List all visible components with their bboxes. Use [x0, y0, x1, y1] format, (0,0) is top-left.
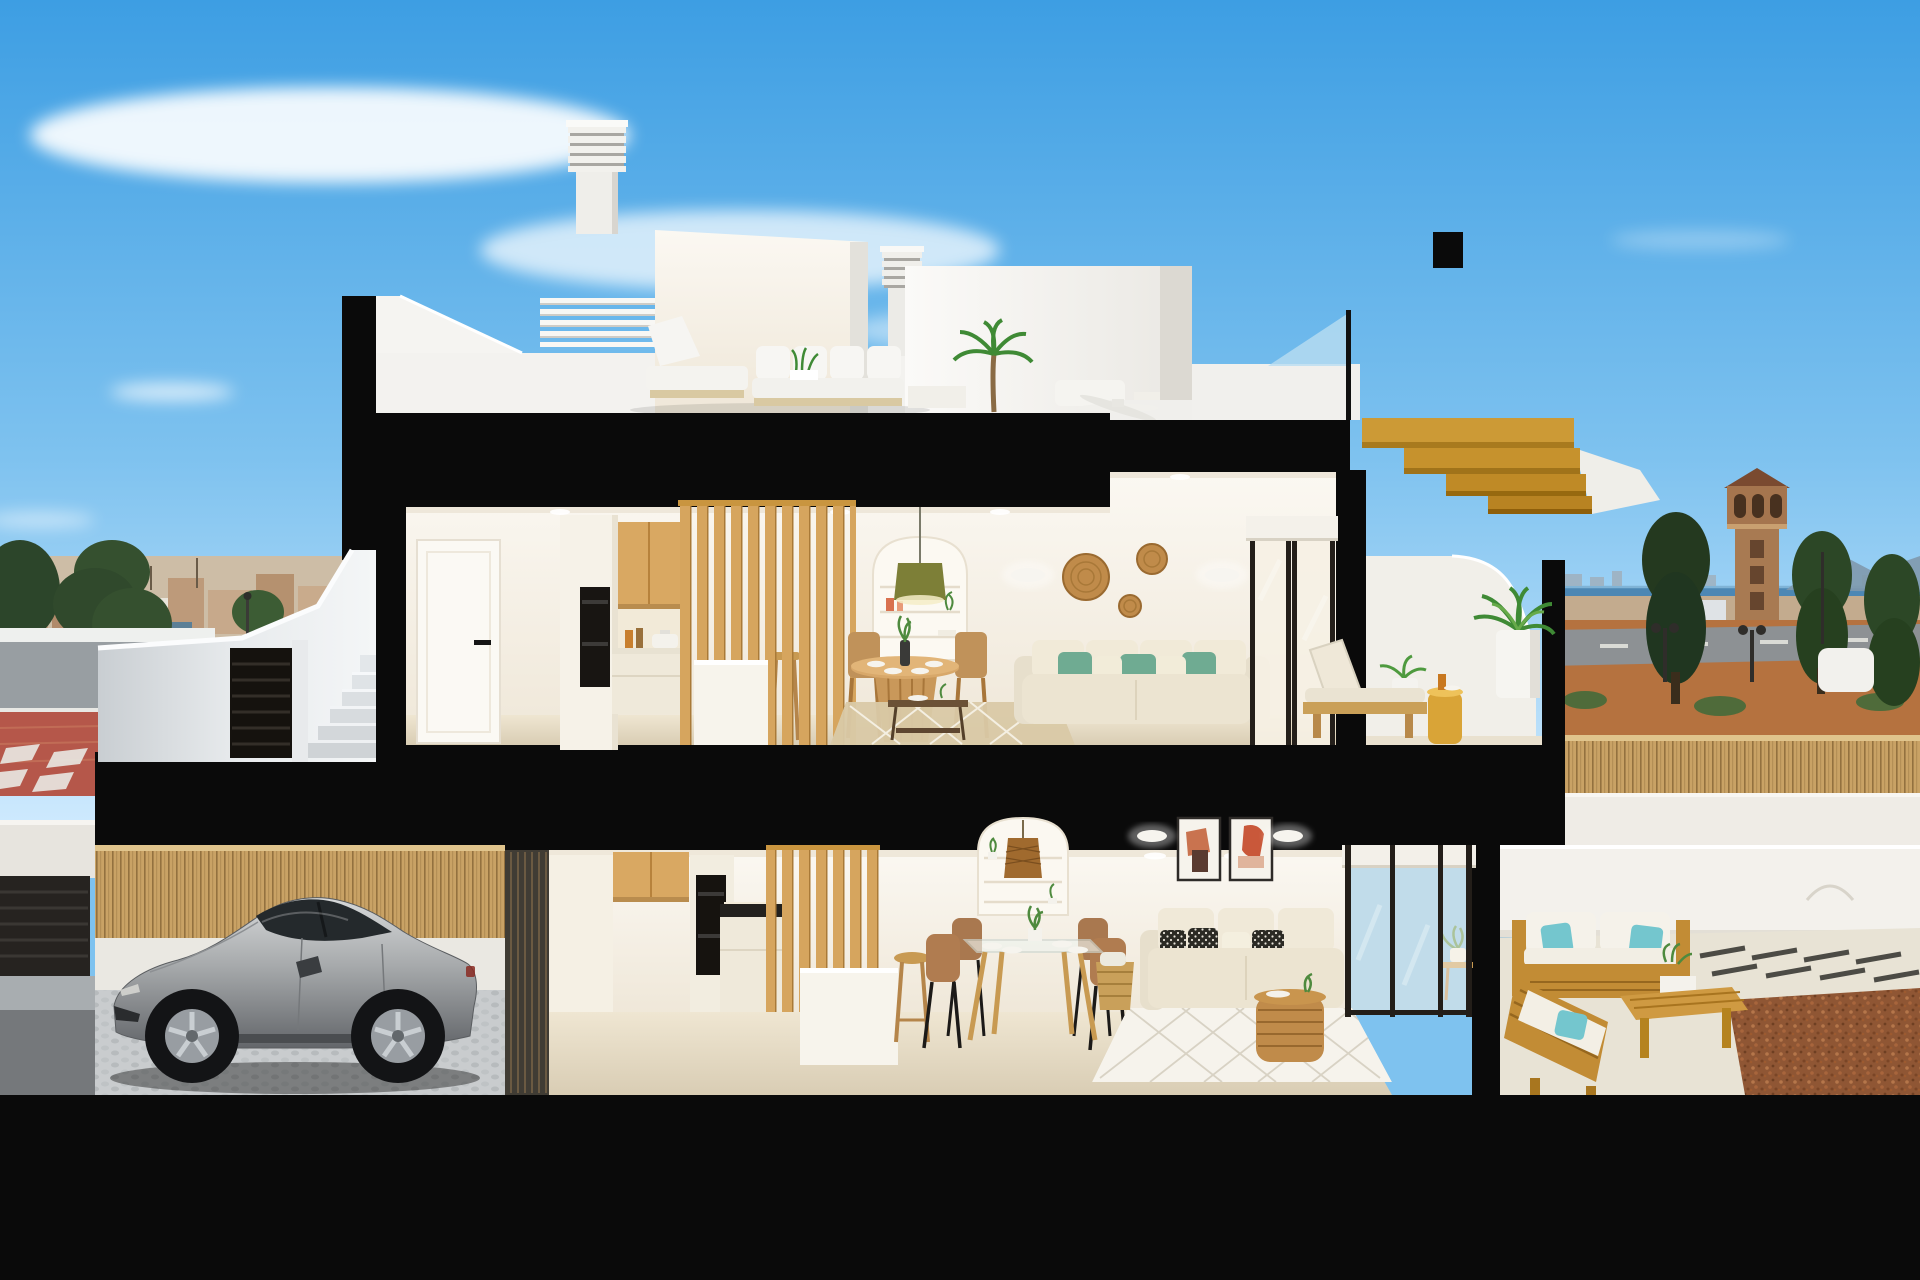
bamboo-fence-right	[1548, 735, 1920, 795]
vase	[886, 598, 894, 611]
countertop	[612, 648, 682, 654]
cross-section-scene	[0, 0, 1920, 1280]
ground-arched-niche	[978, 818, 1068, 915]
cooking-pot	[652, 634, 678, 648]
basket-cloth	[1100, 952, 1126, 966]
tall-cabinet	[549, 855, 613, 1012]
plot-wall-right	[1548, 793, 1920, 850]
framed-artwork	[1178, 818, 1220, 880]
street-wall	[0, 820, 95, 878]
rattan-wall-plate	[1119, 595, 1141, 617]
wall-sconce	[1264, 824, 1312, 848]
books	[938, 630, 956, 636]
upper-hallway-door	[417, 540, 500, 743]
lounger-frame	[1303, 702, 1427, 714]
framed-artwork	[1230, 818, 1272, 880]
street-front-left	[0, 820, 95, 1098]
car-wheel	[351, 989, 445, 1083]
living-room-sofa	[1014, 640, 1270, 724]
cut-neighbor-post	[1433, 232, 1463, 268]
kitchen-island	[800, 968, 898, 1065]
ground-sliding-doors	[1342, 845, 1476, 1017]
railing-post	[1346, 310, 1351, 420]
roof-low-table	[908, 386, 966, 408]
rear-terrace	[1500, 845, 1920, 1098]
rattan-wall-plate	[1137, 544, 1167, 574]
car-wheel	[145, 989, 239, 1083]
cloud	[1610, 230, 1790, 250]
wall-sconce	[1002, 561, 1054, 589]
wall-sconce	[1128, 824, 1176, 848]
white-curved-building	[1818, 648, 1874, 692]
cut-right-column-upper	[1336, 470, 1366, 760]
gravel-bed	[1728, 988, 1920, 1095]
architectural-render	[0, 0, 1920, 1280]
louvered-gate	[230, 648, 292, 758]
glass-panel	[1255, 541, 1286, 745]
cloud	[30, 87, 630, 183]
bottle	[636, 628, 643, 648]
wall-return	[292, 640, 308, 762]
ground-shadow-strip	[0, 1095, 1920, 1280]
rattan-wall-plate	[1063, 554, 1109, 600]
cut-roof-slab	[374, 413, 1110, 507]
roller-blind	[1342, 845, 1476, 867]
kitchen-island	[694, 660, 768, 745]
cut-roof-slab-right	[1110, 420, 1350, 472]
tray	[1266, 991, 1290, 998]
diamond-rug	[1092, 1008, 1392, 1082]
lounger-cushion	[1305, 688, 1425, 703]
taillight	[466, 966, 475, 977]
roof-parapet-right	[1192, 364, 1360, 420]
roof-chaise	[646, 366, 748, 390]
roller-blind	[1246, 516, 1338, 540]
chimney-shaft	[576, 168, 618, 234]
base-cabinets	[612, 654, 682, 714]
bottle	[625, 630, 633, 648]
neighbor-garage-gate	[0, 876, 90, 978]
ground-floor	[505, 818, 1476, 1095]
wall-sconce	[1196, 561, 1248, 589]
upper-floor	[406, 472, 1338, 750]
garage	[95, 845, 549, 1095]
cloud	[110, 383, 234, 401]
cut-right-band-ground	[1472, 845, 1500, 1100]
upper-kitchen	[560, 500, 856, 750]
door-handle	[474, 640, 491, 645]
seat-cushion	[1524, 948, 1676, 966]
